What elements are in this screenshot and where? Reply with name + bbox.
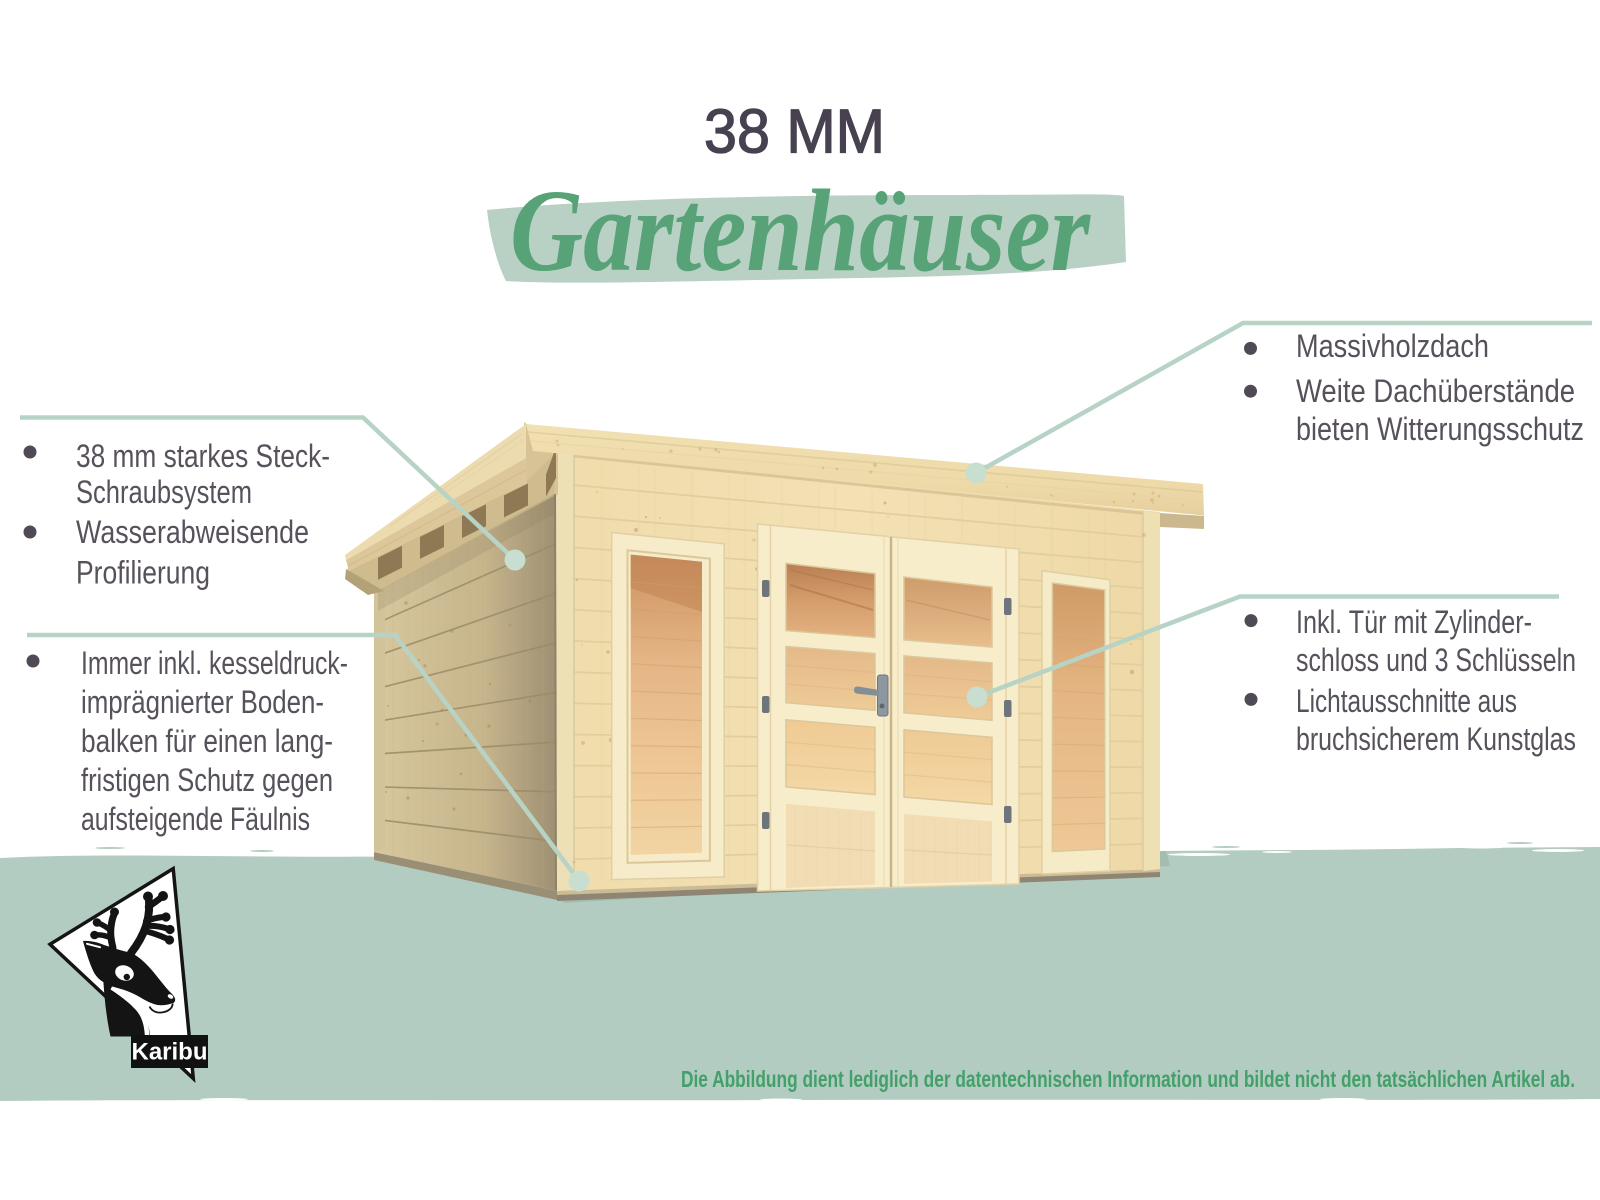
svg-text:Wasserabweisende: Wasserabweisende xyxy=(76,514,309,550)
svg-text:schloss und 3 Schlüsseln: schloss und 3 Schlüsseln xyxy=(1296,642,1576,678)
svg-text:Die Abbildung dient lediglich: Die Abbildung dient lediglich der datent… xyxy=(681,1066,1575,1092)
svg-text:Lichtausschnitte aus: Lichtausschnitte aus xyxy=(1296,683,1517,719)
svg-text:bieten Witterungsschutz: bieten Witterungsschutz xyxy=(1296,411,1584,447)
svg-text:38 MM: 38 MM xyxy=(704,98,885,167)
svg-text:Gartenhäuser: Gartenhäuser xyxy=(510,165,1091,296)
svg-text:Inkl. Tür mit Zylinder-: Inkl. Tür mit Zylinder- xyxy=(1296,604,1532,640)
svg-text:Weite Dachüberstände: Weite Dachüberstände xyxy=(1296,373,1575,409)
svg-text:Schraubsystem: Schraubsystem xyxy=(76,474,252,510)
svg-text:Immer inkl. kesseldruck-: Immer inkl. kesseldruck- xyxy=(81,645,348,681)
svg-text:Karibu: Karibu xyxy=(131,1039,207,1066)
svg-text:aufsteigende Fäulnis: aufsteigende Fäulnis xyxy=(81,801,310,837)
svg-text:38 mm starkes Steck-: 38 mm starkes Steck- xyxy=(76,438,330,474)
svg-text:Profilierung: Profilierung xyxy=(76,555,210,591)
svg-text:Massivholzdach: Massivholzdach xyxy=(1296,328,1489,364)
svg-text:balken für einen lang-: balken für einen lang- xyxy=(81,723,333,759)
svg-text:imprägnierter Boden-: imprägnierter Boden- xyxy=(81,684,324,720)
svg-text:fristigen Schutz gegen: fristigen Schutz gegen xyxy=(81,762,333,798)
svg-text:bruchsicherem Kunstglas: bruchsicherem Kunstglas xyxy=(1296,721,1576,757)
